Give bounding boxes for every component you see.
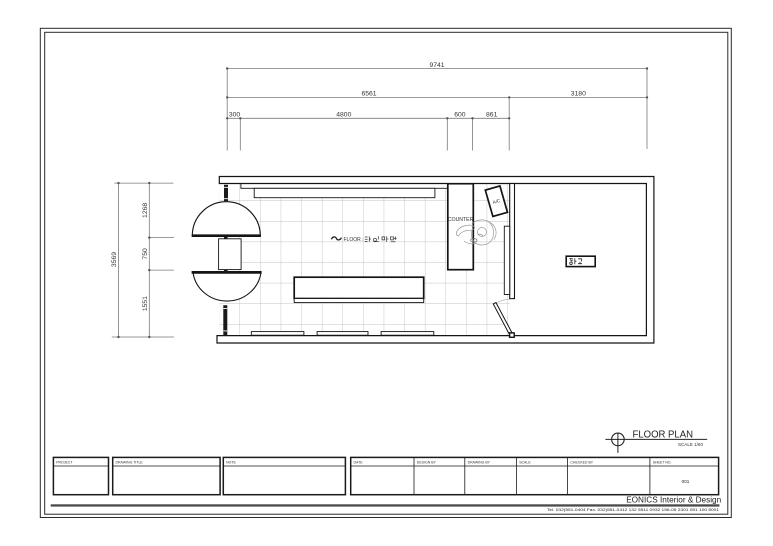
svg-text:600: 600 xyxy=(454,112,466,119)
svg-text:DRAWING TITLE: DRAWING TITLE xyxy=(116,460,144,464)
svg-text:EONICS Interior & Design: EONICS Interior & Design xyxy=(626,495,721,505)
svg-text:3569: 3569 xyxy=(111,252,118,267)
svg-text:DRAWING BY: DRAWING BY xyxy=(468,460,491,464)
svg-text:FLOOR PLAN: FLOOR PLAN xyxy=(633,429,694,440)
svg-text:861: 861 xyxy=(486,112,498,119)
svg-text:4800: 4800 xyxy=(336,112,351,119)
svg-text:300: 300 xyxy=(229,112,241,119)
svg-text:PROJECT: PROJECT xyxy=(56,460,73,464)
svg-text:NOTE: NOTE xyxy=(226,460,236,464)
svg-text:FLOOR :: FLOOR : xyxy=(344,237,364,243)
svg-text:1268: 1268 xyxy=(142,203,149,218)
svg-text:Tel. 032)551-0404 Fax. 032)5: Tel. 032)551-0404 Fax. 032)551-0412 132 … xyxy=(547,508,719,512)
svg-text:1551: 1551 xyxy=(142,296,149,311)
svg-text:SCALE: SCALE xyxy=(519,460,531,464)
svg-text:DATE: DATE xyxy=(354,460,364,464)
svg-text:9741: 9741 xyxy=(429,62,444,69)
svg-text:3180: 3180 xyxy=(571,91,586,98)
svg-text:6561: 6561 xyxy=(361,91,376,98)
svg-text:001: 001 xyxy=(682,479,690,484)
svg-text:SHEET NO.: SHEET NO. xyxy=(653,460,672,464)
svg-text:SCALE 1/60: SCALE 1/60 xyxy=(678,442,703,447)
svg-text:CHECKED BY: CHECKED BY xyxy=(570,460,593,464)
svg-text:DESIGN BY: DESIGN BY xyxy=(417,460,437,464)
svg-text:750: 750 xyxy=(142,248,149,260)
svg-text:COUNTER: COUNTER xyxy=(448,217,474,223)
